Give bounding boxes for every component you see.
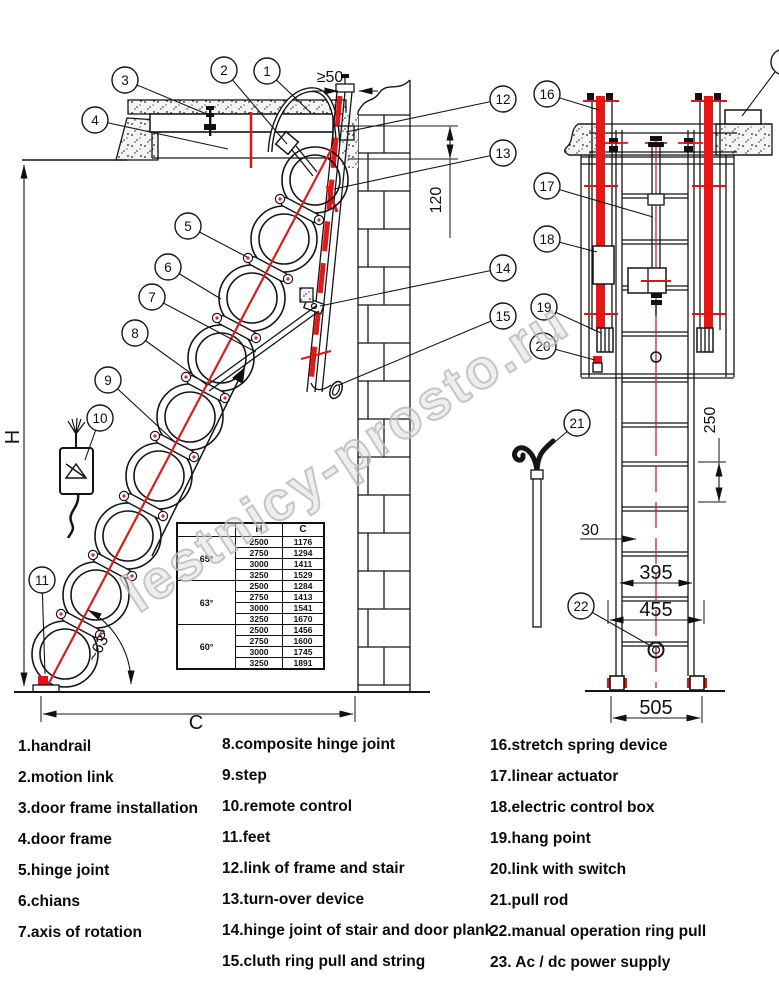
callout-6: 6 <box>155 254 221 299</box>
pull-rod <box>515 441 553 627</box>
ceiling-band <box>565 110 772 155</box>
legend-item-8: 8.composite hinge joint <box>222 736 493 753</box>
dim-label-395: 395 <box>639 562 672 584</box>
callout-15: 15 <box>339 303 516 385</box>
legend-item-13: 13.turn-over device <box>222 891 493 908</box>
svg-text:21: 21 <box>569 416 584 431</box>
svg-text:15: 15 <box>495 309 510 324</box>
callout-12: 12 <box>346 86 516 132</box>
string-ring <box>327 380 345 401</box>
callout-21: 21 <box>549 410 590 447</box>
legend-item-22: 22.manual operation ring pull <box>490 923 706 940</box>
legend-item-1: 1.handrail <box>18 738 198 755</box>
svg-text:13: 13 <box>495 146 510 161</box>
header-H: H <box>236 523 283 537</box>
pull-string <box>311 383 331 390</box>
dim-label-H: H <box>2 430 24 444</box>
table-row: 60°25001456 <box>177 625 324 636</box>
legend-item-23: 23. Ac / dc power supply <box>490 954 706 971</box>
page: ≥50 120 H C ~63° 250 30 395 455 505 1 2 … <box>0 0 779 985</box>
callout-18: 18 <box>534 226 597 252</box>
dim-label-250: 250 <box>702 407 719 434</box>
dim-label-120: 120 <box>428 187 445 214</box>
legend-item-7: 7.axis of rotation <box>18 924 198 941</box>
callout-13: 13 <box>334 140 516 189</box>
legend-item-11: 11.feet <box>222 829 493 846</box>
brick-wall <box>358 80 410 692</box>
link-with-switch <box>593 356 602 372</box>
legend-item-3: 3.door frame installation <box>18 800 198 817</box>
table-row: 63°25001284 <box>177 581 324 592</box>
remote-control <box>60 418 93 538</box>
legend-item-15: 15.cluth ring pull and string <box>222 953 493 970</box>
callout-14: 14 <box>320 255 516 306</box>
callout-7: 7 <box>139 284 256 352</box>
svg-text:7: 7 <box>148 290 156 305</box>
antenna-icon <box>68 418 85 448</box>
dim-label-C: C <box>189 712 203 734</box>
stair-red-rail <box>311 96 340 383</box>
svg-text:16: 16 <box>539 87 554 102</box>
hc-table: H C 65°25001176 27501294 30001411 325015… <box>176 522 325 670</box>
legend-item-16: 16.stretch spring device <box>490 737 706 754</box>
feet <box>33 676 59 692</box>
legend-item-10: 10.remote control <box>222 798 493 815</box>
svg-text:11: 11 <box>35 573 49 588</box>
angle-cell: 65° <box>177 537 236 581</box>
header-blank <box>177 523 236 537</box>
legend-item-21: 21.pull rod <box>490 892 706 909</box>
power-supply-box <box>725 110 761 124</box>
svg-text:17: 17 <box>539 179 554 194</box>
table-header-row: H C <box>177 523 324 537</box>
svg-text:1: 1 <box>263 64 271 79</box>
legend-item-12: 12.link of frame and stair <box>222 860 493 877</box>
callout-5: 5 <box>175 213 247 257</box>
legend-column-3: 16.stretch spring device 17.linear actua… <box>490 737 706 985</box>
svg-text:9: 9 <box>104 373 112 388</box>
brick-joints <box>368 115 384 685</box>
svg-text:10: 10 <box>92 411 107 426</box>
svg-text:2: 2 <box>220 63 228 78</box>
callout-17: 17 <box>534 173 653 217</box>
dim-label-505: 505 <box>639 697 672 719</box>
callout-23-partial <box>742 49 779 116</box>
ladder-feet <box>607 676 707 690</box>
callout-8: 8 <box>122 320 207 385</box>
svg-text:18: 18 <box>539 232 554 247</box>
legend-item-9: 9.step <box>222 767 493 784</box>
legend-column-1: 1.handrail 2.motion link 3.door frame in… <box>18 738 198 955</box>
table-row: 65°25001176 <box>177 537 324 548</box>
svg-text:19: 19 <box>536 300 551 315</box>
legend-item-20: 20.link with switch <box>490 861 706 878</box>
legend-item-17: 17.linear actuator <box>490 768 706 785</box>
legend-item-4: 4.door frame <box>18 831 198 848</box>
svg-text:5: 5 <box>184 219 192 234</box>
legend-item-14: 14.hinge joint of stair and door plank <box>222 922 493 939</box>
dim-250 <box>698 438 726 502</box>
technical-drawing: ≥50 120 H C ~63° 250 30 395 455 505 1 2 … <box>0 0 779 735</box>
callout-20: 20 <box>530 333 595 360</box>
legend-item-2: 2.motion link <box>18 769 198 786</box>
door-plank <box>150 114 333 132</box>
angle-cell: 60° <box>177 625 236 670</box>
dim-label-30: 30 <box>581 522 599 539</box>
angle-cell: 63° <box>177 581 236 625</box>
remote-cord <box>68 494 78 538</box>
svg-text:20: 20 <box>535 339 550 354</box>
legend-item-19: 19.hang point <box>490 830 706 847</box>
dim-label-clearance: ≥50 <box>317 69 344 86</box>
legend-item-18: 18.electric control box <box>490 799 706 816</box>
svg-text:8: 8 <box>131 326 139 341</box>
dim-label-455: 455 <box>639 599 672 621</box>
svg-text:12: 12 <box>495 92 510 107</box>
svg-text:14: 14 <box>495 261 511 276</box>
legend-column-2: 8.composite hinge joint 9.step 10.remote… <box>222 736 493 984</box>
legend-item-5: 5.hinge joint <box>18 862 198 879</box>
svg-text:4: 4 <box>91 113 99 128</box>
svg-text:6: 6 <box>164 260 172 275</box>
callout-9: 9 <box>95 367 175 442</box>
legend-item-6: 6.chians <box>18 893 198 910</box>
svg-text:22: 22 <box>573 599 588 614</box>
svg-text:3: 3 <box>121 73 129 88</box>
header-C: C <box>283 523 325 537</box>
